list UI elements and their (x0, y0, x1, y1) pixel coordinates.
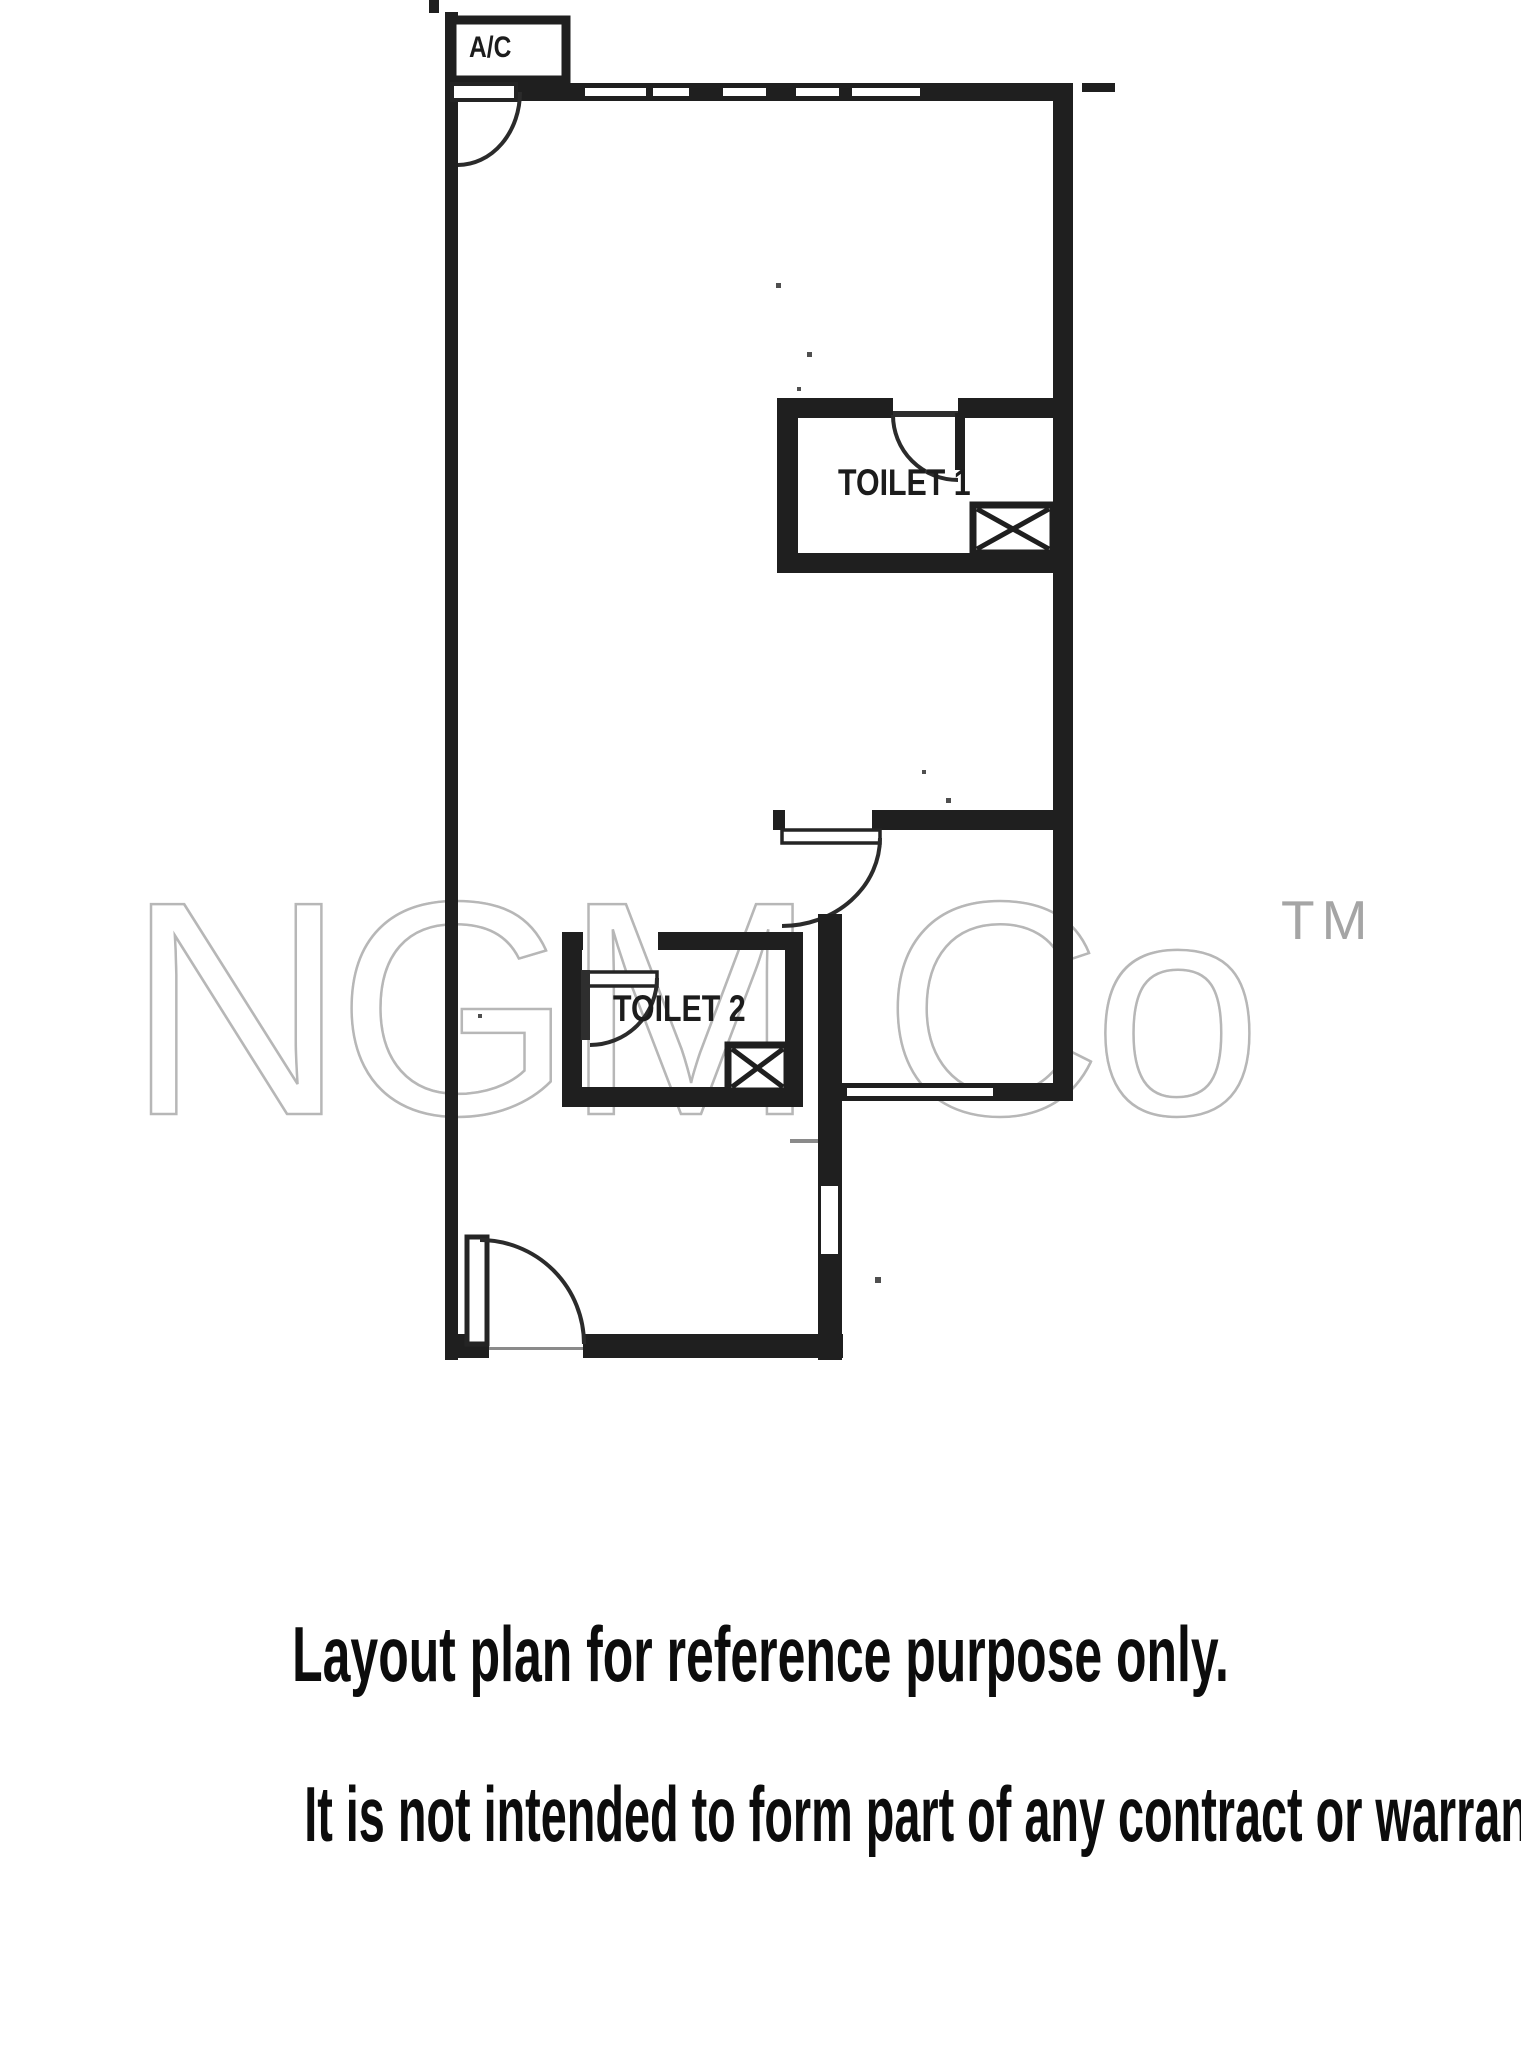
toilet2-door-leaf (583, 972, 657, 986)
lower-right-window (847, 1088, 993, 1096)
wall-bottom-right-seg (583, 1334, 843, 1358)
toilet1-door-closed-line (893, 411, 958, 417)
mid-wall (872, 810, 1053, 830)
corridor-wall (818, 914, 842, 1360)
window-mullion-1 (646, 88, 653, 96)
toilet1-wall-left (777, 398, 798, 573)
scan-speck (807, 352, 812, 357)
wall-top-tick (429, 0, 439, 13)
toilet2-wall-top-right (658, 932, 803, 950)
ac-unit-label: A/C (469, 31, 511, 65)
toilet1-wall-top-right (958, 398, 1053, 418)
scan-speck (946, 798, 951, 803)
caption-line-2: It is not intended to form part of any c… (304, 1772, 1217, 1858)
mid-door-leaf (782, 830, 880, 843)
window-mullion-4 (839, 88, 852, 96)
corridor-tick (790, 1139, 818, 1143)
window-band-top (585, 88, 920, 96)
scanned-floor-plan-page: NGM Co TM (0, 0, 1521, 2048)
wall-dash-top-right (1082, 83, 1115, 92)
entrance-door-leaf (467, 1237, 487, 1344)
top-left-door-arc (458, 92, 520, 165)
scan-speck (922, 770, 926, 774)
entrance-door-arc (480, 1240, 584, 1344)
wall-left (445, 12, 458, 1360)
floor-plan-drawing (0, 0, 1521, 2048)
top-left-door-leaf (452, 84, 516, 100)
scan-speck (776, 283, 781, 288)
window-mullion-3 (766, 88, 796, 96)
toilet2-wall-left (562, 932, 582, 1107)
toilet2-label: TOILET 2 (613, 988, 746, 1030)
caption-line-1: Layout plan for reference purpose only. (274, 1612, 1247, 1698)
window-mullion-2 (689, 88, 723, 96)
scan-speck (797, 387, 801, 391)
mid-wall-stub (773, 810, 785, 830)
scan-speck (478, 1014, 482, 1018)
wall-right (1053, 83, 1073, 1101)
toilet1-label: TOILET 1 (838, 462, 971, 504)
scan-speck (875, 1277, 881, 1283)
entrance-threshold (489, 1347, 583, 1350)
mid-door-arc (782, 838, 880, 926)
corridor-wall-opening (821, 1186, 838, 1254)
toilet2-door-open-leaf (581, 970, 590, 1040)
